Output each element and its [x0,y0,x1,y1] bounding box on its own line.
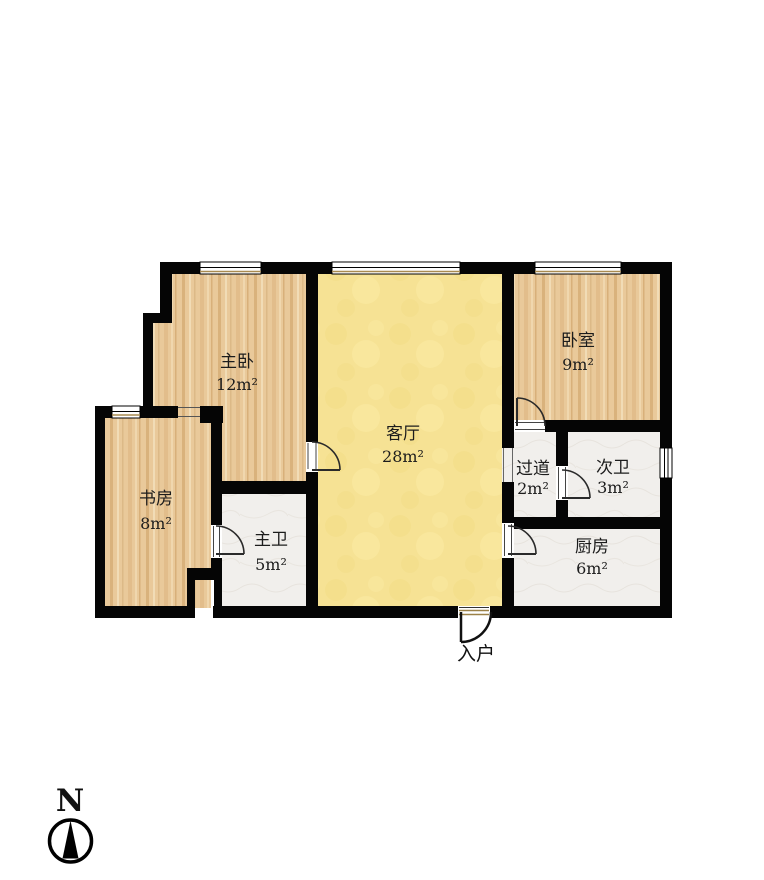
wall-master-bottom [211,481,318,494]
wall-master-left-upper [160,262,172,319]
room-master-bedroom-name: 主卧 [220,352,254,372]
compass-icon: N [50,783,92,862]
entrance-label: 入户 [457,643,495,665]
wall-living-right-mid [502,482,514,523]
wall-kitchen-top [513,517,672,529]
wall-bottom-center [213,606,458,618]
wall-study-bath-upper [211,423,222,525]
compass-needle-icon [63,821,79,859]
room-second-bath-area: 3m² [597,478,629,497]
north-label: N [56,783,84,819]
room-second-bath-name: 次卫 [596,458,630,478]
wall-living-right-upper [502,262,514,448]
room-bedroom-name: 卧室 [561,331,595,351]
wall-study-left [95,406,105,618]
room-master-bath-area: 5m² [255,555,287,574]
wall-bottom-study [95,606,195,618]
room-living-room-name: 客厅 [386,424,420,444]
room-kitchen-name: 厨房 [575,537,609,557]
window-second-bath [660,448,672,478]
room-master-bath-name: 主卫 [254,530,288,550]
window-study [112,406,140,418]
room-study-area: 8m² [140,514,172,533]
room-kitchen-area: 6m² [576,559,608,578]
window-master-bedroom [200,262,261,274]
floorplan-image: 主卧 12m² 客厅 28m² 卧室 9m² 书房 8m² 主卫 5m² 过道 … [0,0,764,880]
wall-bedroom-bottom [545,420,672,432]
wall-bottom-right [490,606,672,618]
wall-master-living-lower [306,472,318,618]
room-hallway-name: 过道 [516,459,550,479]
wall-living-right-lower [502,558,514,606]
wall-hallway-bath-lower [556,500,568,517]
floors [101,268,660,608]
wall-right [660,262,672,618]
door-entrance [458,606,491,642]
window-living-room [332,262,460,274]
wall-master-left-lower [143,313,153,418]
window-bedroom [535,262,621,274]
wall-master-living-upper [306,262,318,442]
room-living-room-area: 28m² [382,447,424,466]
wall-notch-left [187,576,195,618]
floorplan-svg: 主卧 12m² 客厅 28m² 卧室 9m² 书房 8m² 主卫 5m² 过道 … [0,0,764,880]
room-bedroom-area: 9m² [562,355,594,374]
wall-corner-block [200,406,223,423]
room-hallway-area: 2m² [517,479,549,498]
wall-hallway-bath-upper [556,432,568,466]
room-study-name: 书房 [139,489,173,509]
room-master-bedroom-area: 12m² [216,375,258,394]
wall-notch-right [214,576,222,618]
